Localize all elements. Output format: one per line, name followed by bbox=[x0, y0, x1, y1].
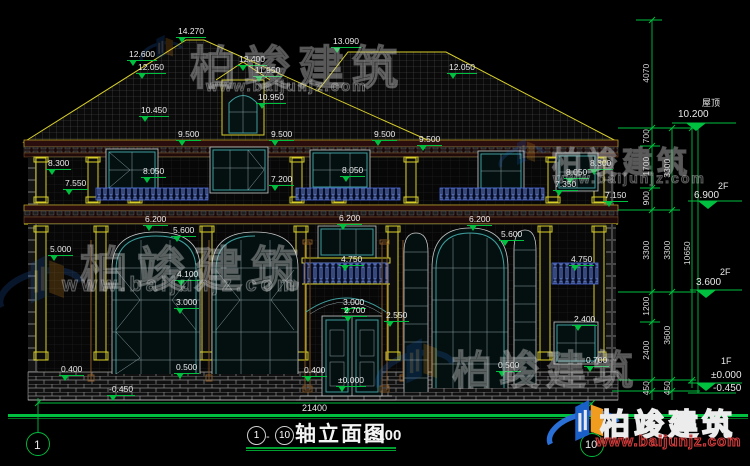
elevation-label: 2.400 bbox=[572, 315, 597, 326]
elevation-label: 12.050 bbox=[447, 63, 477, 74]
elevation-label: 4.750 bbox=[569, 255, 594, 266]
elevation-label: 9.500 bbox=[269, 130, 294, 141]
elevation-label: 4.750 bbox=[339, 255, 364, 266]
elevation-label: -0.450 bbox=[107, 385, 135, 396]
elevation-label: 5.000 bbox=[48, 245, 73, 256]
level-floor-label: 1F bbox=[721, 357, 732, 366]
level-value: 3.600 bbox=[696, 278, 721, 288]
elevation-label: 8.050 bbox=[340, 166, 365, 177]
watermark-url: www.baijunjz.com bbox=[553, 170, 706, 186]
elevation-label: 2.550 bbox=[384, 311, 409, 322]
brand-url: www.baijunjz.com bbox=[596, 433, 741, 450]
dim-label: 1200 bbox=[642, 284, 651, 328]
elevation-label: 6.200 bbox=[337, 214, 362, 225]
dim-label: 10650 bbox=[683, 231, 692, 275]
drawing-scale: 1:100 bbox=[363, 428, 401, 443]
watermark-url: www.baijunjz.com bbox=[62, 274, 299, 297]
level-floor-label: 2F bbox=[720, 268, 731, 277]
axis-bubble-left-label: 1 bbox=[34, 439, 41, 451]
elevation-label: 0.500 bbox=[174, 363, 199, 374]
elevation-label: 7.200 bbox=[269, 175, 294, 186]
total-width-dim: 21400 bbox=[302, 404, 327, 413]
elevation-label: 9.500 bbox=[372, 130, 397, 141]
watermark-url: www.baijunjz.com bbox=[206, 78, 367, 95]
elevation-label: 12.050 bbox=[136, 63, 166, 74]
elevation-label: 8.300 bbox=[46, 159, 71, 170]
dim-label: 3300 bbox=[663, 228, 672, 272]
elevation-label: 6.200 bbox=[143, 215, 168, 226]
elevation-label: 9.500 bbox=[176, 130, 201, 141]
dim-label: 4070 bbox=[642, 51, 651, 95]
elevation-label: 7.150 bbox=[603, 191, 628, 202]
level-floor-label: 2F bbox=[718, 182, 729, 191]
title-underline-2 bbox=[246, 450, 396, 451]
level-value: -0.450 bbox=[713, 384, 741, 394]
elevation-label: 5.600 bbox=[499, 230, 524, 241]
elevation-label: 6.200 bbox=[467, 215, 492, 226]
elevation-label: 0.400 bbox=[302, 366, 327, 377]
elevation-label: 8.050 bbox=[141, 167, 166, 178]
elevation-label: 12.600 bbox=[127, 50, 157, 61]
elevation-label: 2.700 bbox=[342, 306, 367, 317]
level-value: 6.900 bbox=[694, 191, 719, 201]
title-axis-from-bubble: 1 bbox=[247, 426, 266, 445]
dim-label: 3300 bbox=[642, 228, 651, 272]
upper-balustrades bbox=[96, 188, 544, 200]
level-floor-label: 屋顶 bbox=[702, 99, 720, 108]
level-value: 10.200 bbox=[678, 110, 709, 120]
cad-elevation-drawing: 14.270 12.600 12.050 10.450 12.400 11.95… bbox=[0, 0, 750, 466]
level-value: ±0.000 bbox=[711, 371, 742, 381]
mid-cornice bbox=[24, 205, 618, 224]
title-dash: - bbox=[266, 432, 270, 443]
elevation-label: 10.450 bbox=[139, 106, 169, 117]
dim-label: 3600 bbox=[663, 313, 672, 357]
elevation-label: ±0.000 bbox=[336, 376, 366, 387]
title-underline bbox=[246, 447, 396, 449]
watermark-brand: 柏竣建筑 bbox=[452, 338, 640, 396]
title-axis-to-bubble: 10 bbox=[275, 426, 294, 445]
elevation-label: 0.400 bbox=[59, 365, 84, 376]
elevation-label: 7.550 bbox=[63, 179, 88, 190]
elevation-label: 9.500 bbox=[417, 135, 442, 146]
